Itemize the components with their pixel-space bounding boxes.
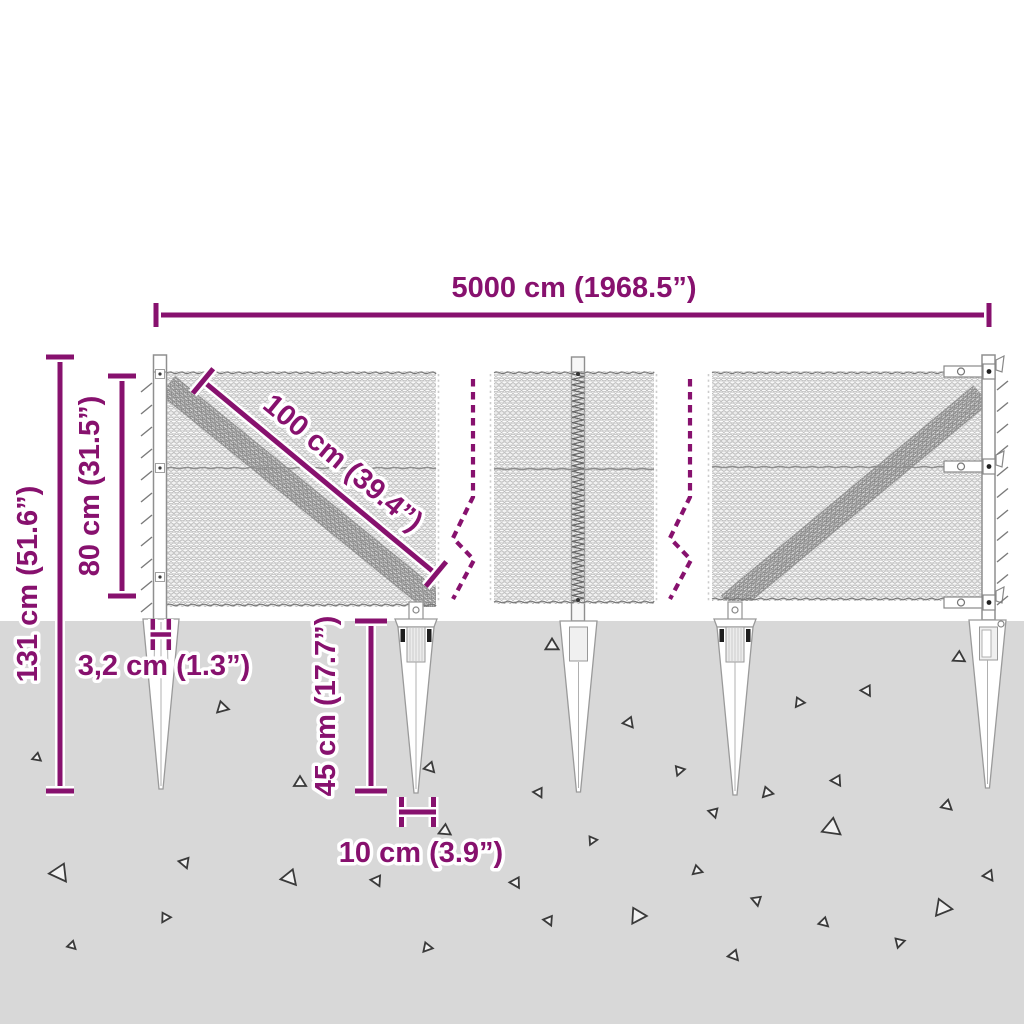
svg-text:80 cm (31.5”): 80 cm (31.5”): [74, 396, 106, 577]
svg-text:3,2 cm (1.3”): 3,2 cm (1.3”): [78, 650, 250, 682]
svg-text:10 cm (3.9”): 10 cm (3.9”): [339, 837, 503, 869]
svg-text:131 cm (51.6”): 131 cm (51.6”): [12, 486, 44, 683]
svg-text:45 cm (17.7”): 45 cm (17.7”): [310, 616, 342, 797]
svg-text:5000 cm (1968.5”): 5000 cm (1968.5”): [451, 272, 696, 304]
